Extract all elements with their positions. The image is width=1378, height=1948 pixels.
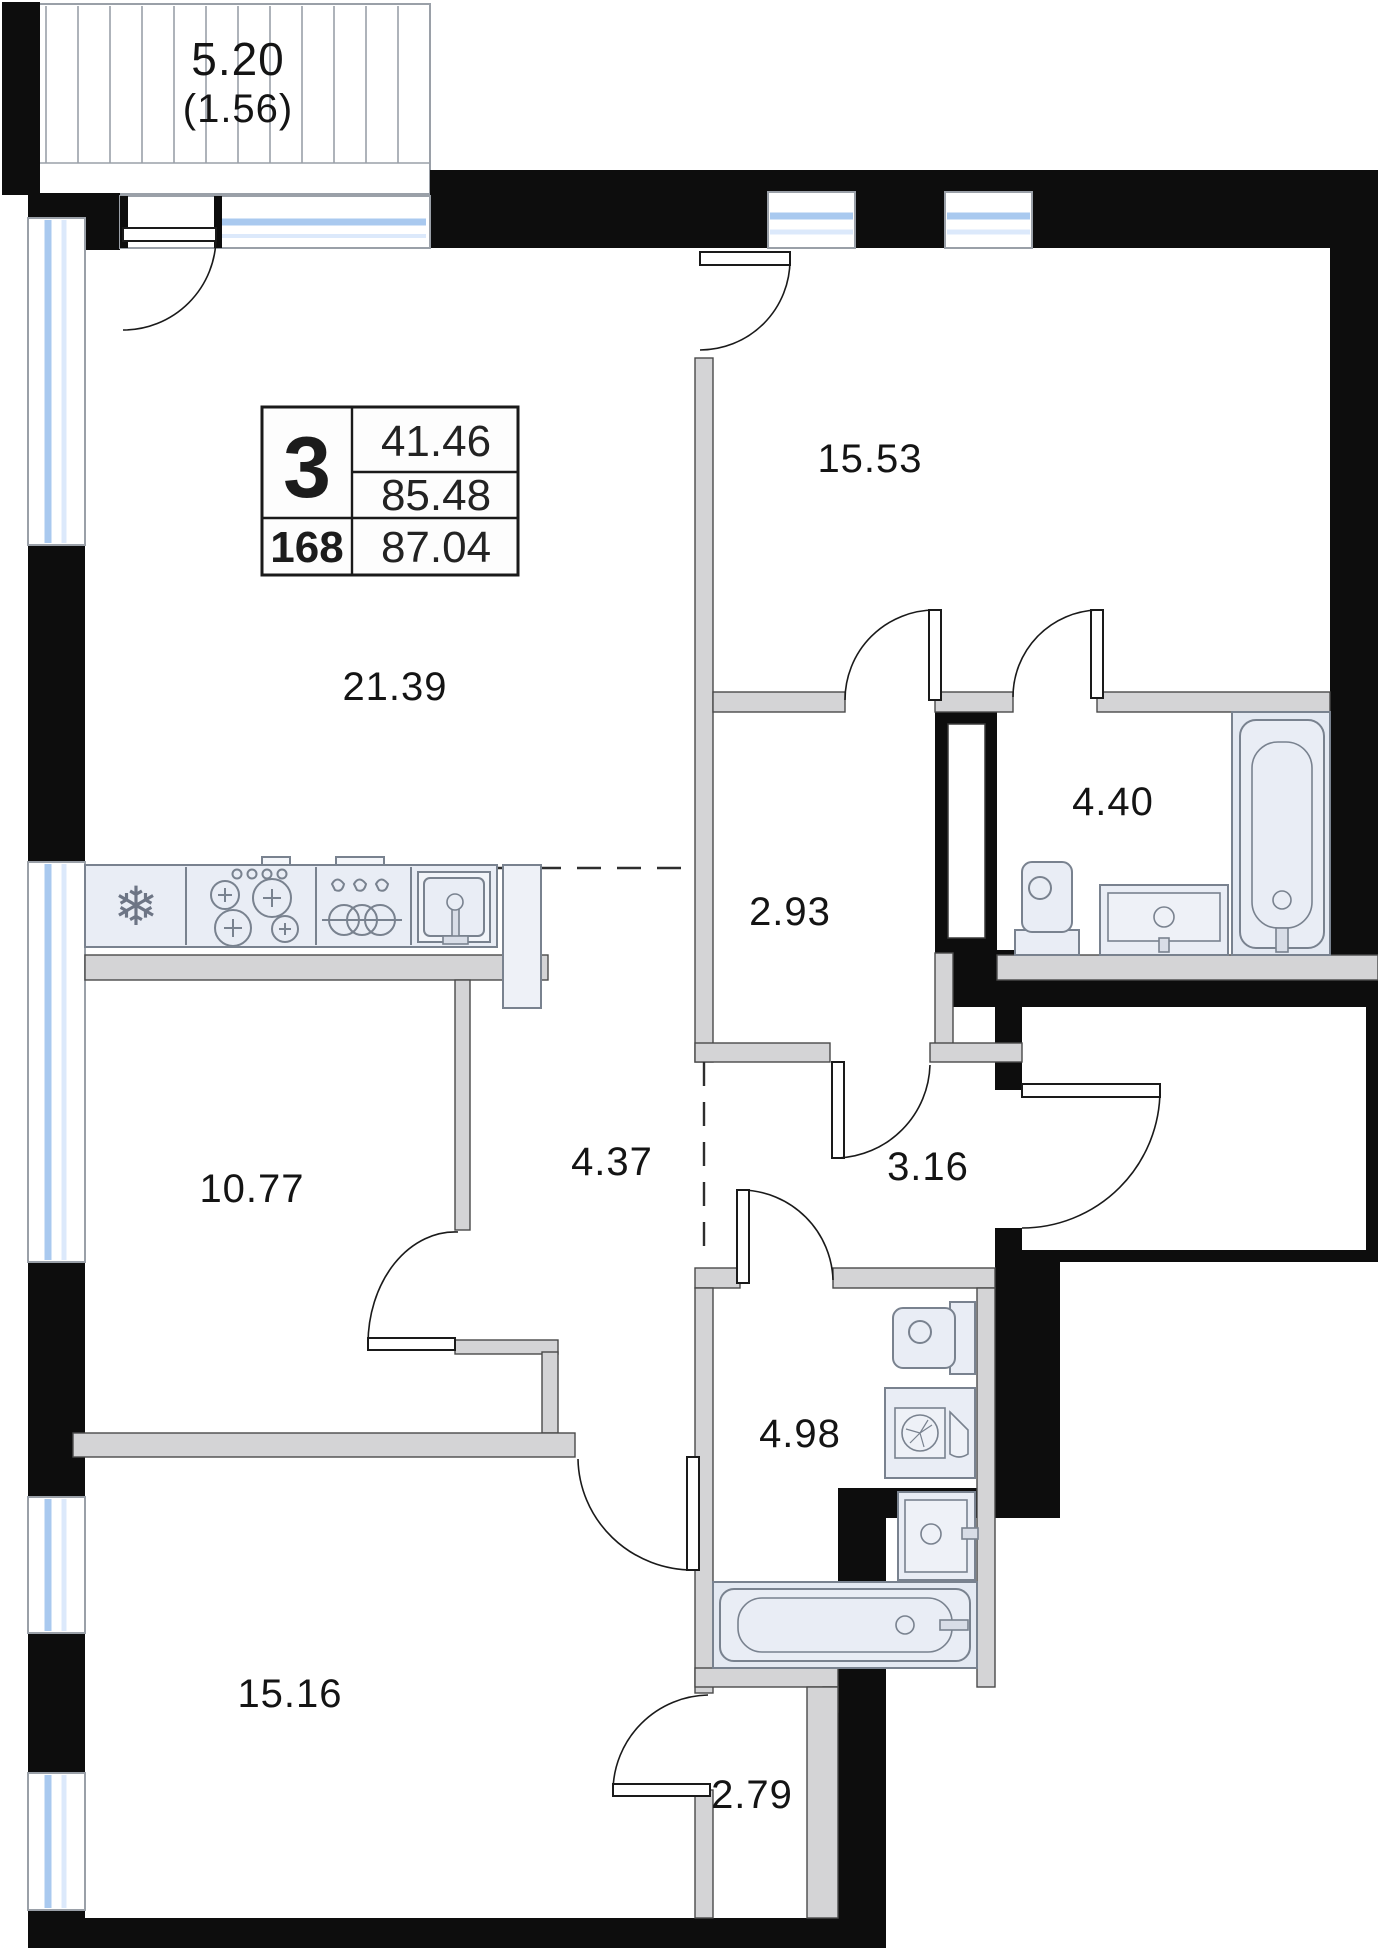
info-flat-number: 168 <box>270 523 343 572</box>
room-label-bedroom-top: 15.53 <box>817 437 922 481</box>
bathroom-main-door <box>1013 610 1103 698</box>
room-label-corridor: 4.37 <box>571 1140 653 1184</box>
toilet-icon <box>893 1302 975 1374</box>
toilet-icon <box>1015 862 1079 955</box>
bathtub-icon <box>713 1582 977 1668</box>
room-label-bedroom-bottom: 15.16 <box>237 1672 342 1716</box>
window-icon <box>945 192 1032 248</box>
room-label-corridor-lower: 2.79 <box>711 1773 793 1817</box>
info-living-area: 41.46 <box>381 417 491 466</box>
hallway-door <box>832 1062 930 1158</box>
balcony: 5.20 (1.56) <box>2 2 430 195</box>
entrance-door <box>1022 1084 1160 1228</box>
info-rooms-count: 3 <box>283 420 331 516</box>
window-icon <box>28 218 85 545</box>
room-label-bathroom-second: 4.98 <box>759 1412 841 1456</box>
window-icon <box>28 1497 85 1633</box>
floor-plan-drawing: 5.20 (1.56) <box>0 0 1378 1948</box>
sink-icon <box>898 1492 978 1580</box>
bedroom-left-door <box>368 1232 458 1350</box>
bathroom-second-fixtures <box>713 1302 978 1668</box>
room-label-hall-upper: 2.93 <box>749 890 831 934</box>
fridge-icon: ❄ <box>113 875 158 938</box>
bedroom-top-door <box>700 252 790 350</box>
window-icon <box>28 1773 85 1910</box>
window-icon <box>28 862 85 1262</box>
kitchen-sink-icon <box>418 872 490 944</box>
balcony-area-note-label: (1.56) <box>183 87 294 131</box>
sink-icon <box>1100 885 1228 955</box>
bedroom-entry-door <box>845 610 941 700</box>
info-total-area: 87.04 <box>381 523 491 572</box>
room-label-bathroom-main: 4.40 <box>1072 780 1154 824</box>
info-box: 3 41.46 85.48 168 87.04 <box>262 407 518 575</box>
room-label-bedroom-left: 10.77 <box>199 1167 304 1211</box>
floor-plan-page: 5.20 (1.56) <box>0 0 1378 1948</box>
washing-machine-icon <box>885 1388 975 1478</box>
bathroom-main-fixtures <box>1015 712 1330 955</box>
info-area-no-balcony: 85.48 <box>381 471 491 520</box>
window-icon <box>768 192 855 248</box>
duct-shaft <box>948 724 985 938</box>
balcony-area-label: 5.20 <box>191 33 285 85</box>
bathroom-second-door <box>737 1190 833 1283</box>
corridor-lower-door <box>613 1695 710 1796</box>
room-labels: 15.53 21.39 4.40 2.93 10.77 4.37 3.16 4.… <box>199 437 1153 1817</box>
bedroom-bottom-door <box>578 1457 699 1570</box>
bathtub-icon <box>1232 712 1330 955</box>
room-label-hallway-center: 3.16 <box>887 1145 969 1189</box>
balcony-west-wall <box>2 2 40 195</box>
room-label-living: 21.39 <box>342 665 447 709</box>
